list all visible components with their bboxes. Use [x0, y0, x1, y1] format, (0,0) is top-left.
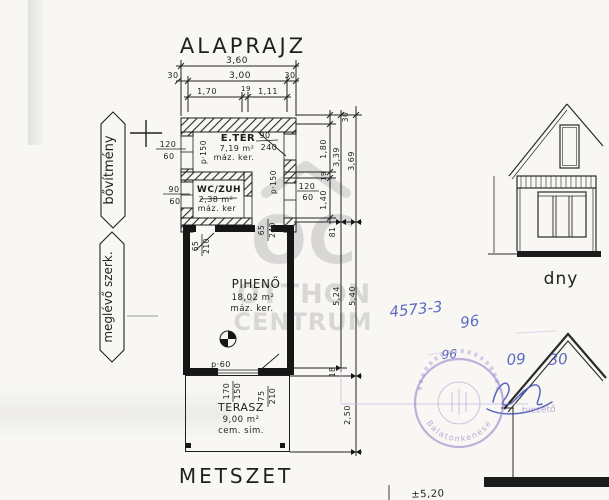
label-terasz-a2: 150 — [233, 383, 242, 400]
dim-seg2: 19 — [241, 85, 251, 93]
label-parapet-left: p·150 — [199, 140, 208, 164]
drawing-canvas: OC OTTHON CENTRUM ALAPRAJZ METSZET 3,60 … — [0, 0, 609, 500]
label-parapet-mid: p·150 — [269, 170, 278, 194]
wall-eter-wc — [181, 172, 252, 180]
dny-elevation — [488, 104, 603, 257]
scanned-floor-plan-page: OC OTTHON CENTRUM ALAPRAJZ METSZET 3,60 … — [0, 0, 609, 500]
label-win1-h: 60 — [163, 152, 174, 161]
label-door-main-w: 90 — [259, 131, 270, 140]
room-terasz-finish: cem. sim. — [218, 426, 264, 436]
date-month: 09 — [506, 350, 526, 369]
rdim-s4: 81 — [328, 227, 337, 238]
stamp-top-arc — [420, 351, 498, 390]
label-opening-right-w: 65 — [257, 225, 266, 236]
room-terasz-name: TERASZ — [217, 401, 264, 414]
label-win-right-h: 60 — [302, 193, 313, 202]
rdim-s2: 19 — [320, 171, 328, 181]
room-eter-finish: máz. ker. — [214, 153, 255, 162]
rdim-s3: 1,40 — [319, 190, 328, 210]
dim-inner-width: 3,00 — [229, 71, 251, 81]
label-parapet-terasz: p·60 — [211, 360, 231, 369]
room-eter-area: 7,19 m² — [220, 144, 255, 153]
label-win2-h: 60 — [169, 197, 180, 206]
room-wc-name: WC/ZUH — [197, 185, 241, 195]
label-win2-w: 90 — [168, 185, 179, 194]
label-win1-w: 120 — [160, 140, 177, 149]
wall-top — [181, 118, 296, 132]
stamp-emblem — [452, 389, 466, 415]
room-piheno-area: 18,02 m² — [232, 293, 275, 303]
rdim-total-inner: 5,24 — [332, 286, 341, 306]
dim-total-width: 3,60 — [226, 56, 248, 66]
room-wc-area: 2,38 m² — [199, 195, 234, 204]
rdim-top: 30 — [341, 112, 350, 123]
room-piheno-name: PIHENŐ — [232, 276, 281, 291]
rdim-sub: 3,39 — [332, 147, 341, 167]
label-win-right-w: 120 — [299, 182, 316, 191]
elevation-window — [538, 192, 586, 237]
room-eter-name: E.TÉR — [221, 131, 255, 144]
stamp-fragment: tvezető — [522, 405, 557, 416]
rdim-terasz: 2,50 — [343, 405, 352, 425]
label-door-piheno-h: 210 — [202, 238, 211, 254]
label-terasz-b2: 210 — [268, 388, 277, 405]
room-wc-finish: máz. ker — [198, 204, 237, 213]
official-stamp: Balatonkenese tvezető — [415, 331, 556, 447]
rdim-s1: 1,80 — [319, 139, 328, 159]
section-ground — [484, 477, 609, 487]
eave-band — [517, 176, 596, 188]
rdim-total-outer: 5,40 — [348, 286, 357, 306]
year-note-1: 96 — [459, 311, 480, 331]
label-terasz-a1: 170 — [222, 383, 231, 400]
elevation-label: dny — [544, 269, 579, 289]
eave-band-stripes — [521, 176, 591, 188]
dim-seg3: 1,11 — [258, 87, 278, 96]
file-number: 4573-3 — [389, 298, 444, 321]
top-dimension-chain — [175, 60, 299, 116]
section-sketch — [389, 334, 609, 500]
benchmark-symbol — [220, 331, 236, 347]
gable-window — [560, 125, 579, 168]
label-extension: bővítmény — [102, 135, 117, 205]
label-terasz-b1: 75 — [257, 390, 266, 401]
label-opening-right-h: 240 — [268, 222, 277, 238]
elevation-ground — [517, 251, 601, 257]
rdim-sub-outer: 3,69 — [347, 151, 356, 171]
plan-title: ALAPRAJZ — [180, 34, 306, 58]
label-door-main-h: 240 — [261, 143, 278, 152]
section-title: METSZET — [179, 464, 293, 488]
label-door-piheno-w: 65 — [191, 241, 200, 252]
dim-wall-right: 30 — [284, 71, 295, 80]
room-piheno-finish: máz. ker. — [230, 304, 273, 314]
level-mark: ±5,20 — [411, 488, 445, 500]
dim-seg1: 1,70 — [197, 87, 217, 96]
label-existing: meglévő szerk. — [101, 251, 115, 342]
date-day: 30 — [548, 350, 568, 369]
room-terasz-area: 9,00 m² — [223, 415, 260, 425]
rdim-step: 18 — [328, 367, 337, 378]
dim-wall-left: 30 — [167, 71, 178, 80]
